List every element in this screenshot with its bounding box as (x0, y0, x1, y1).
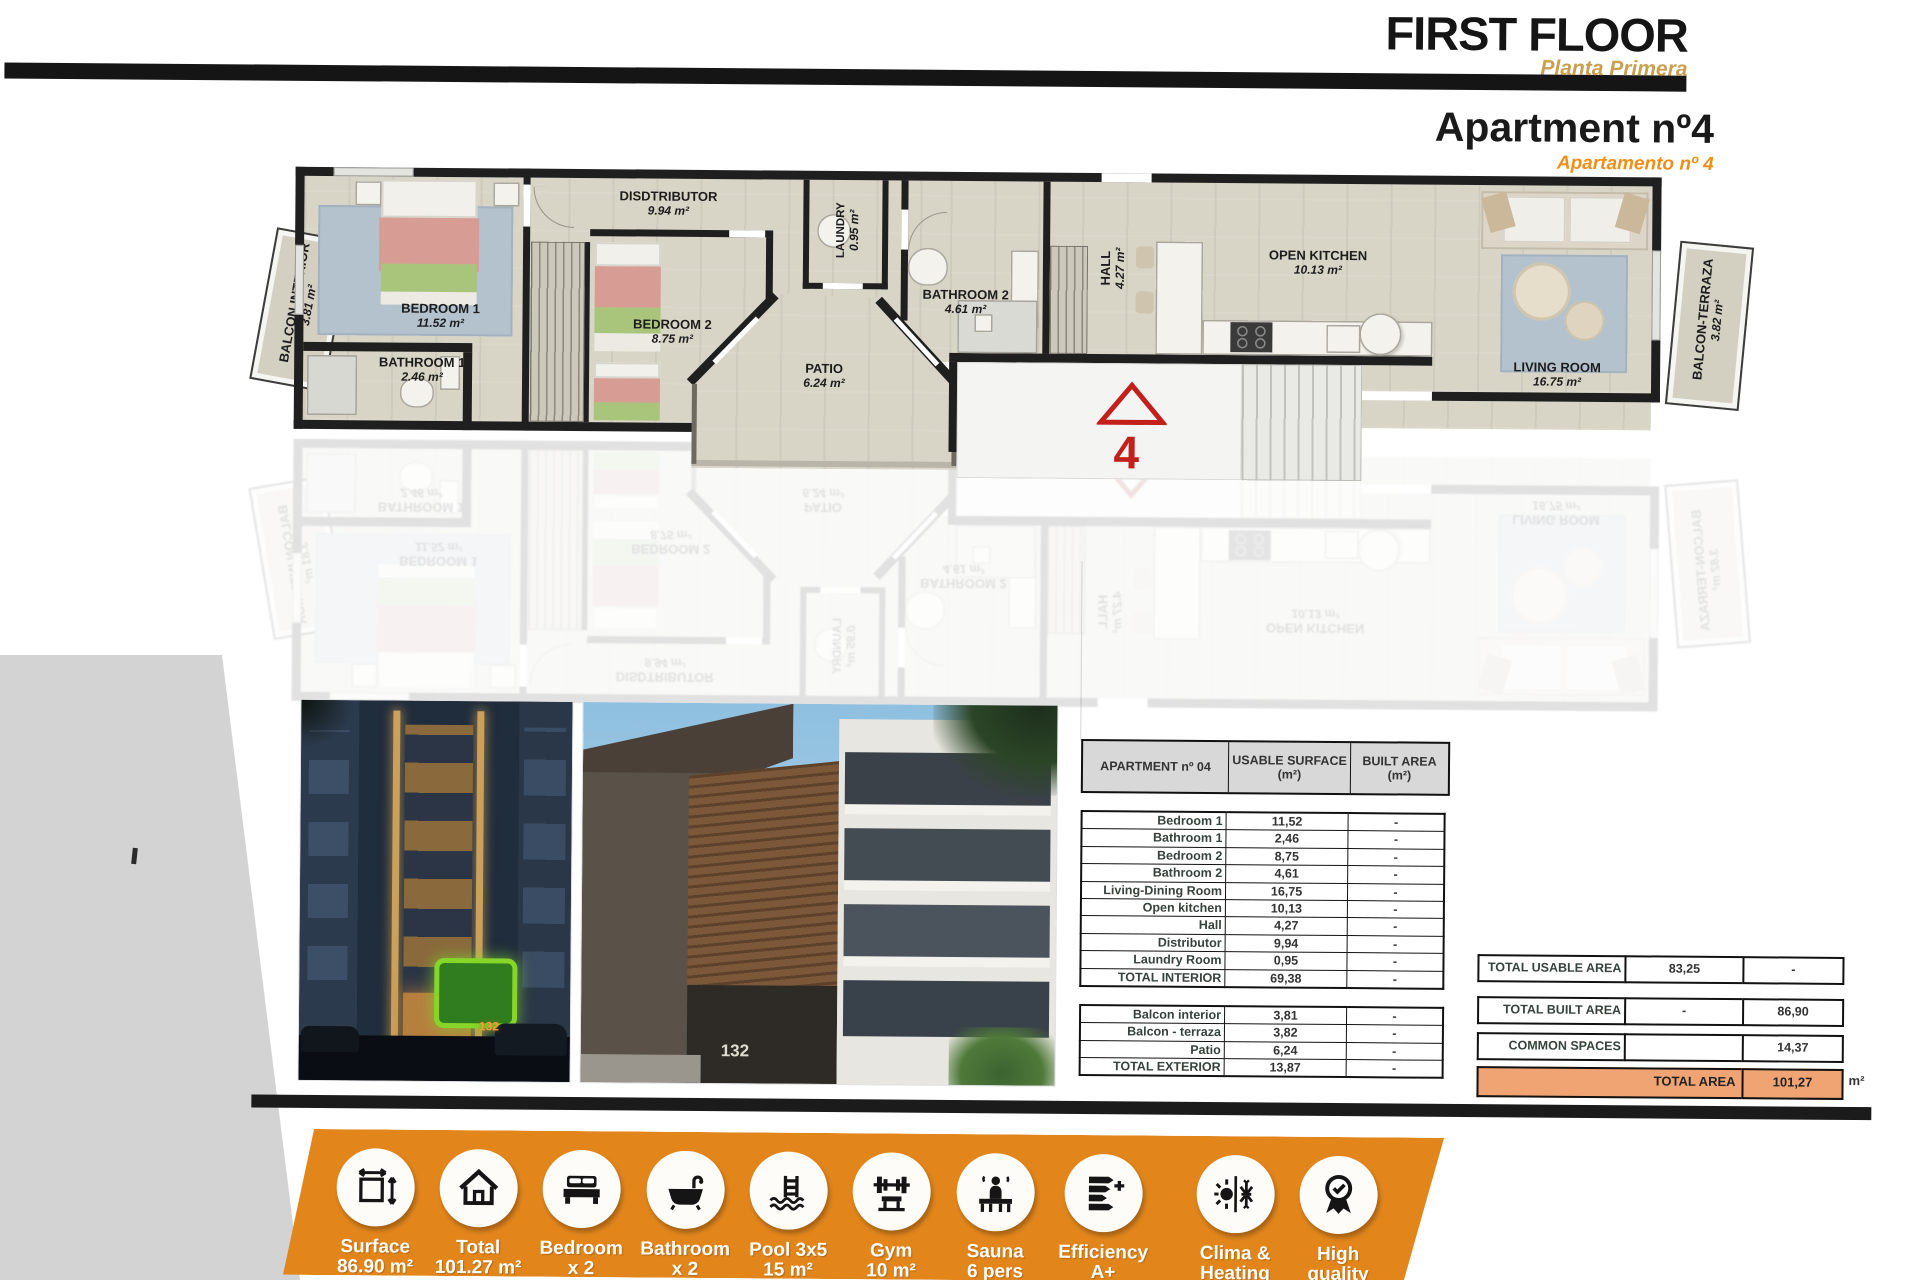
nightstand (355, 181, 381, 205)
area-cell-built: - (1348, 884, 1445, 902)
shower-handle (974, 314, 992, 332)
door-gap (523, 185, 530, 227)
room-label-bedroom-2: BEDROOM 28.75 m² (602, 317, 742, 346)
summary-cell-built: - (1742, 956, 1844, 985)
floor-plan: BALCON INTERIOR 3.81 m² BALCON-TERRAZA 3… (1, 0, 1920, 508)
area-cell-label: Open kitchen (1080, 899, 1226, 918)
toilet (908, 248, 948, 286)
room-label-disdtributor: DISDTRIBUTOR9.94 m² (588, 189, 748, 218)
area-cell-usable: 4,61 (1226, 865, 1348, 883)
area-cell-built: - (1347, 1060, 1444, 1079)
unit-marker-triangle (1097, 381, 1167, 428)
room-label-bathroom-2: BATHROOM 24.61 m² (891, 287, 1041, 316)
room-label-laundry: LAUNDRY0.95 m² (835, 170, 862, 290)
room-label-bedroom-1: BEDROOM 111.52 m² (365, 301, 515, 330)
area-cell-built: - (1347, 1006, 1444, 1026)
bathtub-icon (646, 1151, 725, 1230)
summary-row-common: COMMON SPACES14,37 (1477, 1032, 1844, 1059)
area-table: APARTMENT nº 04 USABLE SURFACE(m²) BUILT… (1079, 739, 1451, 1079)
total-area-unit: m² (1849, 1073, 1865, 1088)
area-cell-usable: 6,24 (1225, 1042, 1347, 1060)
room-label-balcon-terraza: BALCON-TERRAZA 3.82 m² (1689, 239, 1732, 401)
area-cell-built: - (1347, 953, 1444, 971)
bed-pillows (595, 242, 661, 267)
window (1651, 250, 1661, 340)
area-table-header: APARTMENT nº 04 USABLE SURFACE(m²) BUILT… (1081, 739, 1450, 796)
day-entrance (687, 985, 838, 1084)
window (295, 245, 305, 315)
area-cell-label: Hall (1080, 916, 1226, 935)
wall (803, 180, 810, 289)
area-cell-built: - (1348, 849, 1445, 867)
area-cell-label: TOTAL INTERIOR (1079, 968, 1225, 988)
stool (1136, 246, 1154, 268)
area-cell-label: Balcon - terraza (1079, 1023, 1225, 1042)
room-label-patio: PATIO6.24 m² (754, 361, 894, 390)
area-cell-label: Laundry Room (1079, 951, 1225, 970)
summary-cell-built: 14,37 (1742, 1034, 1844, 1063)
house-icon (439, 1149, 518, 1228)
brochure-page: FIRST FLOOR Planta Primera Apartment nº4… (0, 0, 1920, 1280)
photo-day: 132 (581, 702, 1058, 1086)
bed-pillows (381, 179, 477, 218)
area-table-body: Bedroom 111,52-Bathroom 12,46-Bedroom 28… (1079, 810, 1450, 1079)
day-glass-row (844, 904, 1050, 958)
area-cell-usable: 16,75 (1226, 883, 1348, 901)
area-cell-usable: 69,38 (1225, 970, 1347, 989)
plants (949, 1027, 1055, 1086)
amenity-label: Highquality (1263, 1244, 1413, 1280)
kitchen-sink (1326, 325, 1360, 353)
sauna-icon (956, 1153, 1035, 1232)
summary-cell-label: COMMON SPACES (1477, 1032, 1624, 1061)
bed-icon (542, 1150, 621, 1229)
page-content: FIRST FLOOR Planta Primera Apartment nº4… (0, 0, 1920, 1280)
building-number-day: 132 (721, 1041, 750, 1061)
balcony-terraza: BALCON-TERRAZA 3.82 m² (1665, 241, 1754, 411)
area-cell-built: - (1347, 1025, 1444, 1043)
area-cell-built: - (1348, 901, 1445, 919)
area-cell-usable: 10,13 (1226, 900, 1348, 918)
area-cell-usable: 3,82 (1225, 1024, 1347, 1042)
area-cell-built: - (1347, 1043, 1444, 1061)
area-cell-label: Living-Dining Room (1080, 882, 1226, 901)
area-cell-usable: 3,81 (1225, 1005, 1347, 1025)
summary-cell-usable: 83,25 (1624, 955, 1742, 984)
area-cell-usable: 8,75 (1226, 848, 1348, 866)
nightstand (493, 182, 519, 206)
page-fold-line (1080, 561, 1082, 741)
climate-icon (1196, 1155, 1275, 1234)
room-label-bathroom-1: BATHROOM 12.46 m² (347, 355, 497, 384)
area-cell-built: - (1348, 866, 1445, 884)
bed-pillows (594, 362, 660, 379)
area-cell-usable: 4,27 (1226, 917, 1348, 935)
area-cell-usable: 9,94 (1226, 935, 1348, 953)
area-cell-label: Bedroom 1 (1081, 810, 1227, 831)
coffee-table (1513, 262, 1571, 320)
summary-row-built: TOTAL BUILT AREA-86,90 (1477, 996, 1844, 1023)
area-cell-label: Bathroom 2 (1080, 864, 1226, 883)
summary-cell-usable: - (1624, 997, 1742, 1026)
bed-blanket-fold (381, 263, 477, 294)
area-cell-built: - (1348, 936, 1445, 954)
wardrobe (530, 242, 585, 422)
area-cell-label: Patio (1079, 1041, 1225, 1060)
amenities-banner: Surface86.90 m²Total101.27 m²Bedroomx 2B… (235, 1128, 1461, 1280)
tree-foliage (933, 702, 1058, 796)
kitchen-island (1155, 242, 1203, 355)
car-silhouette (495, 1023, 567, 1056)
surface-icon (336, 1148, 415, 1227)
staircase (1241, 364, 1362, 481)
efficiency-icon (1064, 1154, 1143, 1233)
amenity-name: High (1263, 1244, 1413, 1265)
night-windows (522, 728, 566, 988)
highlight-unit-box (434, 958, 518, 1029)
wall (303, 342, 472, 352)
room-label-living-room: LIVING ROOM16.75 m² (1482, 360, 1632, 389)
stove (1230, 322, 1272, 352)
car-silhouette (301, 1026, 359, 1052)
photo-night: 132 (299, 700, 573, 1082)
area-table-row: TOTAL INTERIOR69,38- (1079, 968, 1448, 989)
amenity-value: quality (1263, 1264, 1413, 1280)
area-cell-usable: 11,52 (1227, 811, 1349, 831)
summary-cell-usable (1624, 1033, 1742, 1062)
pool-icon (749, 1151, 828, 1230)
amenity-name: Efficiency (1028, 1243, 1178, 1264)
summary-cell-built: 86,90 (1742, 998, 1844, 1027)
area-table-col-name: APARTMENT nº 04 (1083, 741, 1229, 792)
side-table (1564, 301, 1604, 341)
entrance-door-gap (1102, 173, 1152, 182)
area-cell-usable: 13,87 (1225, 1059, 1347, 1078)
area-cell-label: TOTAL EXTERIOR (1079, 1058, 1225, 1078)
building-number-night: 132 (479, 1019, 499, 1033)
amenity-label: EfficiencyA+ (1028, 1243, 1178, 1280)
area-cell-built: - (1349, 812, 1446, 832)
area-cell-label: Bedroom 2 (1080, 847, 1226, 866)
night-windows (307, 730, 349, 980)
area-table-col-built: BUILT AREA(m²) (1351, 743, 1448, 794)
summary-cell-label: TOTAL BUILT AREA (1477, 996, 1624, 1025)
tree-silhouette (299, 700, 354, 748)
window (334, 167, 414, 177)
wardrobe (1049, 246, 1088, 354)
room-label-open-kitchen: OPEN KITCHEN10.13 m² (1238, 248, 1398, 277)
wall (948, 362, 957, 452)
room-label-hall: HALL4.27 m² (1099, 223, 1128, 313)
total-area-value: 101,27 (1741, 1068, 1843, 1100)
wall (882, 180, 889, 289)
award-icon (1299, 1156, 1378, 1235)
kitchen-column (1359, 313, 1401, 355)
area-cell-built: - (1347, 971, 1444, 990)
area-cell-built: - (1348, 831, 1445, 849)
area-cell-built: - (1348, 918, 1445, 936)
footer-divider-bar (251, 1094, 1871, 1120)
area-table-col-usable: USABLE SURFACE(m²) (1229, 742, 1351, 793)
total-area-label: TOTAL AREA (1476, 1066, 1741, 1099)
unit-marker-number: 4 (1113, 425, 1139, 479)
summary-row-usable: TOTAL USABLE AREA83,25- (1477, 954, 1844, 981)
stool (1136, 291, 1154, 313)
amenity-value: A+ (1028, 1263, 1178, 1280)
area-table-row: TOTAL EXTERIOR13,87- (1079, 1058, 1448, 1079)
area-cell-label: Bathroom 1 (1080, 829, 1226, 848)
gym-icon (852, 1152, 931, 1231)
wall (1432, 392, 1660, 403)
bed-blanket-fold (594, 402, 660, 421)
day-glass-row (844, 828, 1050, 882)
day-street (581, 1054, 701, 1083)
patio-edge (691, 384, 697, 464)
summary-cell-label: TOTAL USABLE AREA (1477, 954, 1624, 983)
door-gap (901, 210, 908, 250)
area-cell-usable: 2,46 (1226, 830, 1348, 848)
area-cell-label: Balcon interior (1079, 1004, 1225, 1025)
area-cell-label: Distributor (1080, 934, 1226, 953)
summary-row-total: TOTAL AREA 101,27 (1476, 1066, 1843, 1096)
door-gap (729, 230, 765, 237)
area-cell-usable: 0,95 (1225, 952, 1347, 970)
